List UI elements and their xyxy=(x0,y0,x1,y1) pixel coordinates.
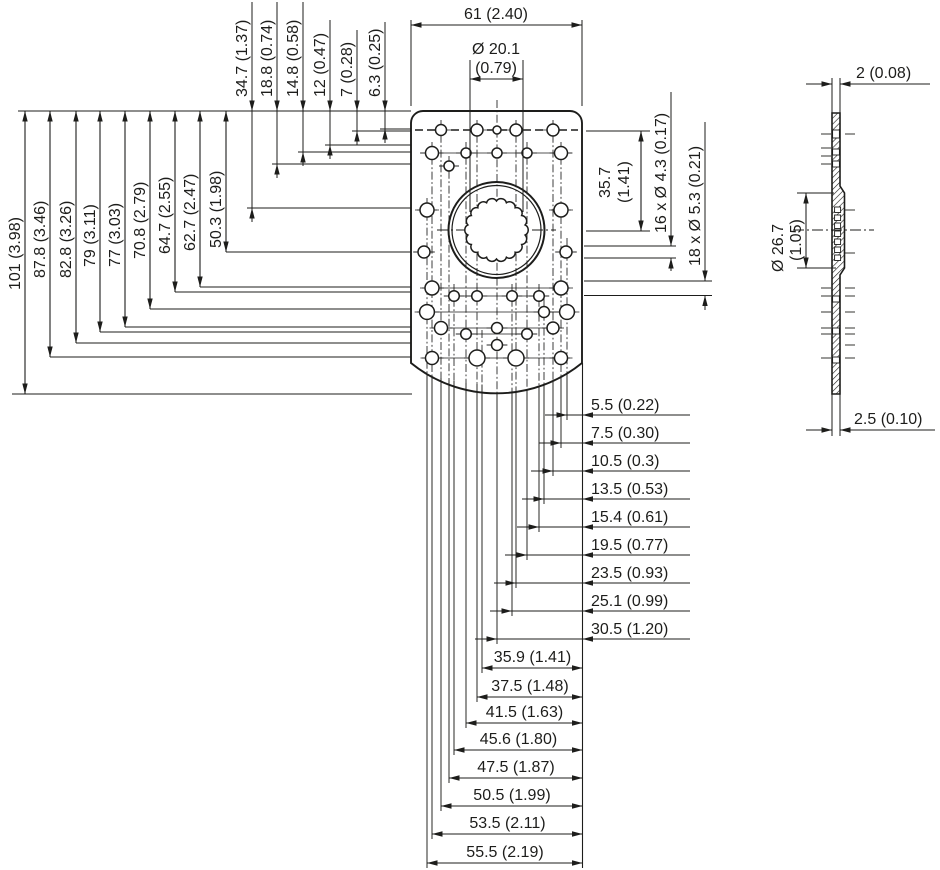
arrowhead xyxy=(529,524,540,529)
dim-left-5: 70.8 (2.79) xyxy=(132,182,149,259)
arrowhead xyxy=(668,258,673,269)
arrowhead xyxy=(73,333,78,344)
section-bore-cut xyxy=(835,207,841,213)
section-hole-cut xyxy=(833,296,840,302)
arrowhead xyxy=(822,81,833,86)
mounting-hole xyxy=(508,350,524,366)
dim-bottom-edge-0: 5.5 (0.22) xyxy=(591,397,659,414)
dim-width-61: 61 (2.40) xyxy=(464,6,528,23)
dim-bottom-edge-5: 19.5 (0.77) xyxy=(591,537,668,554)
mounting-hole xyxy=(547,322,559,334)
mounting-hole xyxy=(555,147,568,160)
dim-bottom-edge-1: 7.5 (0.30) xyxy=(591,425,659,442)
dim-bottom-span-3: 45.6 (1.80) xyxy=(480,731,557,748)
mounting-hole xyxy=(554,203,568,217)
dim-top-1: 18.8 (0.74) xyxy=(259,20,276,97)
section-hole-cut xyxy=(833,130,840,138)
dim-bottom-span-0: 35.9 (1.41) xyxy=(494,649,571,666)
arrowhead xyxy=(382,101,387,112)
arrowhead xyxy=(411,22,422,27)
mounting-hole xyxy=(560,305,575,320)
section-hole-cut xyxy=(833,328,840,334)
mounting-hole xyxy=(547,124,559,136)
mounting-hole xyxy=(507,291,518,302)
arrowhead xyxy=(551,440,562,445)
dim-bottom-edge-6: 23.5 (0.93) xyxy=(591,565,668,582)
arrowhead xyxy=(354,101,359,112)
section-bore-cut xyxy=(835,223,841,229)
arrowhead xyxy=(327,145,332,156)
mounting-hole xyxy=(426,147,439,160)
arrowhead xyxy=(249,208,254,219)
mounting-hole xyxy=(522,329,533,340)
mounting-hole xyxy=(492,148,502,158)
arrowhead xyxy=(502,608,513,613)
arrowhead xyxy=(543,468,554,473)
arrowhead xyxy=(432,831,443,836)
arrowhead xyxy=(638,131,643,142)
mounting-hole xyxy=(420,305,435,320)
arrowhead xyxy=(300,101,305,112)
dim-left-8: 50.3 (1.98) xyxy=(208,171,225,248)
section-bore-cut xyxy=(835,255,841,261)
dim-top-4: 7 (0.28) xyxy=(339,42,356,97)
mounting-hole xyxy=(510,124,522,136)
mounting-hole xyxy=(426,352,439,365)
arrowhead xyxy=(470,76,481,81)
mounting-hole xyxy=(492,323,503,334)
mounting-hole xyxy=(420,203,434,217)
section-hole-cut xyxy=(833,161,840,167)
splined-bore xyxy=(465,199,528,262)
mounting-hole xyxy=(469,350,485,366)
mounting-hole xyxy=(560,246,572,258)
arrowhead xyxy=(840,81,851,86)
arrowhead xyxy=(300,152,305,163)
arrowhead xyxy=(572,747,583,752)
arrowhead xyxy=(572,803,583,808)
dim-top-3: 12 (0.47) xyxy=(312,33,329,97)
dim-top-5: 6.3 (0.25) xyxy=(367,29,384,97)
mounting-hole xyxy=(554,281,568,295)
arrowhead xyxy=(427,860,438,865)
dim-bottom-span-1: 37.5 (1.48) xyxy=(491,678,568,695)
dim-left-4: 77 (3.03) xyxy=(107,203,124,267)
arrowhead xyxy=(477,694,488,699)
arrowhead xyxy=(73,111,78,122)
dim-row-height-inches: (1.41) xyxy=(616,161,633,203)
arrowhead xyxy=(172,111,177,122)
dim-hub-diameter-inches: (1.05) xyxy=(788,219,805,261)
arrowhead xyxy=(638,221,643,232)
arrowhead xyxy=(22,111,27,122)
arrowhead xyxy=(22,384,27,395)
arrowhead xyxy=(466,720,477,725)
dim-bore-diameter-inches: (0.79) xyxy=(475,60,517,77)
section-hole-cut xyxy=(833,149,840,155)
dim-bottom-edge-8: 30.5 (1.20) xyxy=(591,621,668,638)
mounting-hole xyxy=(472,291,483,302)
dim-bottom-span-4: 47.5 (1.87) xyxy=(477,759,554,776)
arrowhead xyxy=(454,747,465,752)
mounting-hole xyxy=(449,291,460,302)
arrowhead xyxy=(97,322,102,333)
arrowhead xyxy=(274,101,279,112)
arrowhead xyxy=(97,111,102,122)
dim-top-0: 34.7 (1.37) xyxy=(234,20,251,97)
dim-left-2: 82.8 (3.26) xyxy=(58,201,75,278)
dim-hub-diameter: Ø 26.7 xyxy=(770,224,787,272)
mounting-hole xyxy=(435,322,448,335)
arrowhead xyxy=(327,101,332,112)
dim-top-2: 14.8 (0.58) xyxy=(285,20,302,97)
dim-bottom-edge-4: 15.4 (0.61) xyxy=(591,509,668,526)
dim-row-height: 35.7 xyxy=(597,167,614,198)
dim-bore-diameter: Ø 20.1 xyxy=(472,41,520,58)
section-bore-cut xyxy=(835,239,841,245)
arrowhead xyxy=(449,775,460,780)
section-hole-cut xyxy=(833,357,840,363)
section-bore-cut xyxy=(835,247,841,253)
arrowhead xyxy=(223,111,228,122)
mounting-hole xyxy=(493,126,501,134)
arrowhead xyxy=(197,277,202,288)
dim-bottom-span-6: 53.5 (2.11) xyxy=(469,815,545,832)
mounting-hole xyxy=(471,124,483,136)
arrowhead xyxy=(441,803,452,808)
arrowhead xyxy=(354,131,359,142)
arrowhead xyxy=(249,101,254,112)
arrowhead xyxy=(197,111,202,122)
arrowhead xyxy=(482,665,493,670)
arrowhead xyxy=(147,299,152,310)
dim-bottom-span-2: 41.5 (1.63) xyxy=(486,704,563,721)
arrowhead xyxy=(572,831,583,836)
arrowhead xyxy=(840,427,851,432)
arrowhead xyxy=(572,665,583,670)
mounting-hole xyxy=(534,291,545,302)
dim-bottom-edge-2: 10.5 (0.3) xyxy=(591,453,659,470)
callout-large-holes: 18 x Ø 5.3 (0.21) xyxy=(687,146,704,266)
arrowhead xyxy=(822,427,833,432)
arrowhead xyxy=(487,636,498,641)
arrowhead xyxy=(47,111,52,122)
mounting-hole xyxy=(444,161,454,171)
mounting-hole xyxy=(425,281,439,295)
arrowhead xyxy=(513,76,524,81)
dim-left-3: 79 (3.11) xyxy=(82,204,99,267)
dim-thickness-bottom: 2.5 (0.10) xyxy=(854,411,922,428)
dim-left-6: 64.7 (2.55) xyxy=(157,177,174,254)
dim-left-0: 101 (3.98) xyxy=(7,217,24,290)
mounting-hole xyxy=(555,352,568,365)
dim-bottom-edge-7: 25.1 (0.99) xyxy=(591,593,668,610)
arrowhead xyxy=(668,236,673,247)
mounting-hole xyxy=(436,125,447,136)
arrowhead xyxy=(517,552,528,557)
dim-bottom-span-5: 50.5 (1.99) xyxy=(473,787,550,804)
arrowhead xyxy=(557,412,568,417)
arrowhead xyxy=(172,282,177,293)
technical-drawing-page: 61 (2.40)Ø 20.1(0.79)34.7 (1.37)18.8 (0.… xyxy=(0,0,940,870)
dim-bottom-span-7: 55.5 (2.19) xyxy=(466,844,543,861)
section-bore-cut xyxy=(835,215,841,221)
arrowhead xyxy=(274,164,279,175)
dim-left-7: 62.7 (2.47) xyxy=(182,174,199,251)
mounting-plate-dimensional-drawing: 61 (2.40)Ø 20.1(0.79)34.7 (1.37)18.8 (0.… xyxy=(0,0,940,870)
mounting-hole xyxy=(539,307,550,318)
mounting-hole xyxy=(418,246,430,258)
arrowhead xyxy=(122,111,127,122)
section-bore-cut xyxy=(835,231,841,237)
dim-left-1: 87.8 (3.46) xyxy=(32,201,49,278)
arrowhead xyxy=(572,22,583,27)
arrowhead xyxy=(147,111,152,122)
arrowhead xyxy=(47,347,52,358)
arrowhead xyxy=(572,694,583,699)
arrowhead xyxy=(506,580,517,585)
mounting-hole xyxy=(492,340,503,351)
callout-small-holes: 16 x Ø 4.3 (0.17) xyxy=(653,113,670,233)
arrowhead xyxy=(122,317,127,328)
arrowhead xyxy=(572,860,583,865)
arrowhead xyxy=(572,720,583,725)
mounting-hole xyxy=(461,329,472,340)
dim-bottom-edge-3: 13.5 (0.53) xyxy=(591,481,668,498)
arrowhead xyxy=(702,271,707,282)
arrowhead xyxy=(702,296,707,307)
arrowhead xyxy=(572,775,583,780)
arrowhead xyxy=(803,193,808,204)
dim-thickness-top: 2 (0.08) xyxy=(856,65,911,82)
